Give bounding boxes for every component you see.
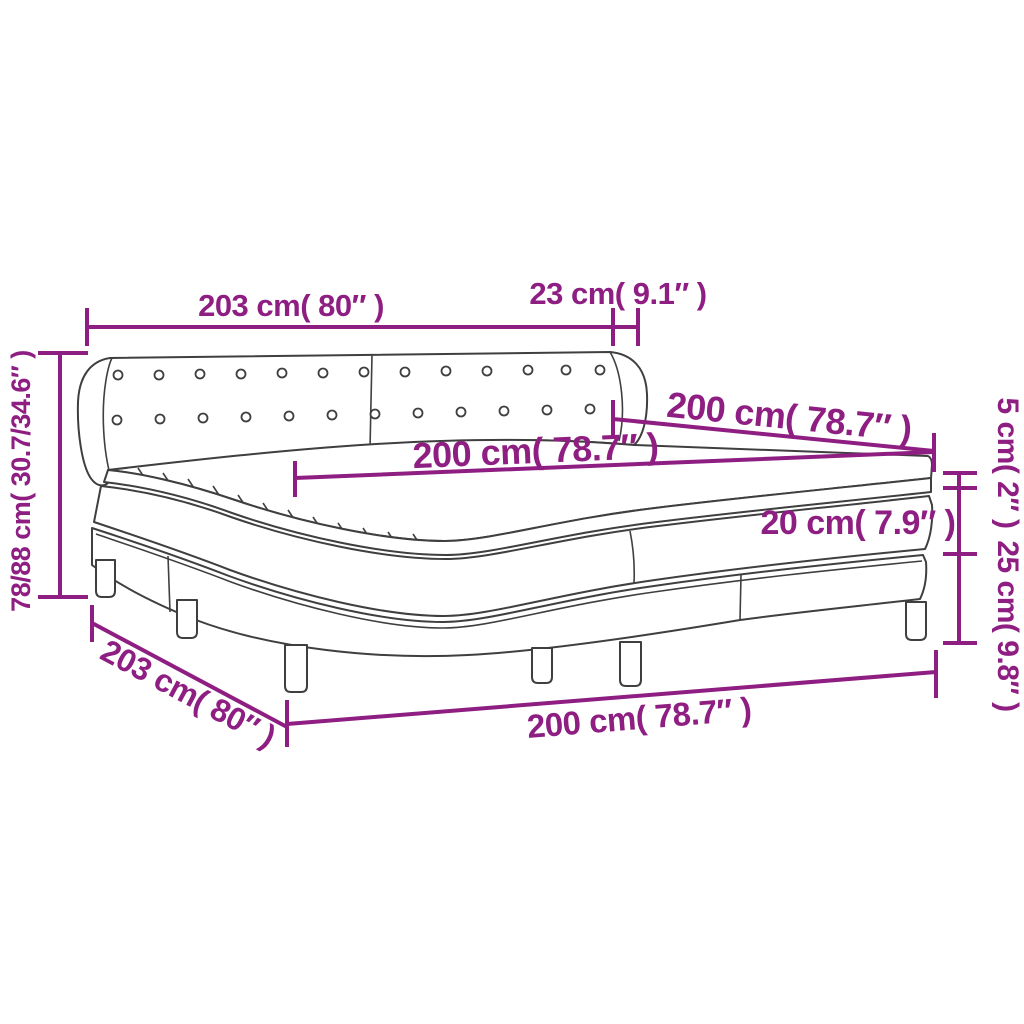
dim-label-wing-depth: 23 cm( 9.1″ ) — [529, 276, 706, 311]
base-corner-edge — [740, 575, 741, 620]
dim-line — [943, 473, 977, 643]
bed-leg — [620, 642, 641, 686]
bed-leg — [285, 645, 307, 692]
dimension-diagram: 203 cm( 80″ ) 23 cm( 9.1″ ) 78/88 cm( 30… — [0, 0, 1024, 1024]
dim-label-base-width: 200 cm( 78.7″ ) — [526, 690, 753, 745]
bed-leg — [96, 560, 115, 597]
dim-wing-depth: 23 cm( 9.1″ ) — [529, 276, 706, 311]
dim-label-bed-depth: 200 cm( 78.7″ ) — [665, 384, 914, 450]
dim-label-side-length: 203 cm( 80″ ) — [95, 632, 281, 754]
dim-label-topper-thickness: 5 cm( 2″ ) — [991, 397, 1024, 528]
bed-diagram-canvas: 203 cm( 80″ ) 23 cm( 9.1″ ) 78/88 cm( 30… — [0, 0, 1024, 1024]
dim-label-mattress-thickness: 20 cm( 7.9″ ) — [761, 504, 956, 542]
bed-leg — [177, 600, 197, 638]
bed-leg — [532, 648, 552, 683]
dim-label-total-height: 78/88 cm( 30.7/34.6″ ) — [6, 350, 36, 612]
bed-leg — [906, 602, 926, 640]
dim-label-base-height: 25 cm( 9.8″ ) — [991, 540, 1024, 711]
dim-label-headboard-width: 203 cm( 80″ ) — [198, 288, 384, 323]
dim-total-height: 78/88 cm( 30.7/34.6″ ) — [6, 350, 88, 612]
dim-base-width: 200 cm( 78.7″ ) — [287, 650, 936, 745]
